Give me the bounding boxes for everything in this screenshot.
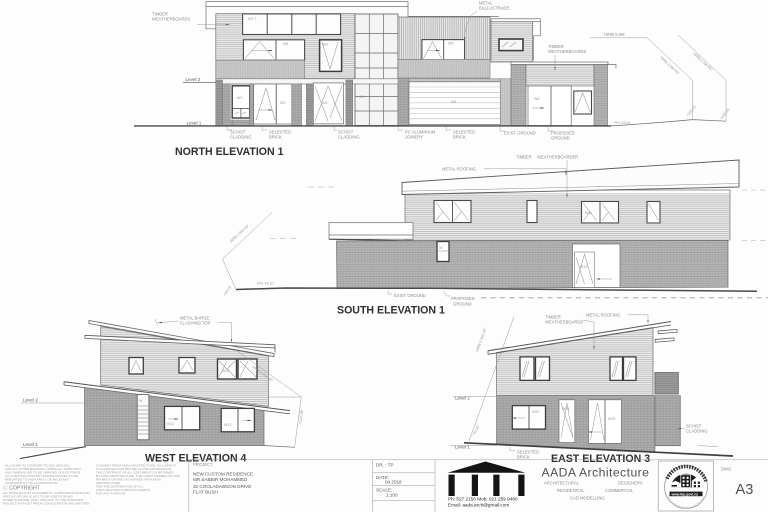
svg-text:CLADDING: CLADDING [686,429,708,434]
svg-text:+2142.80: +2142.80 [298,410,304,426]
svg-text:BRICK: BRICK [269,135,282,140]
svg-text:NORTH ELEVATION 1: NORTH ELEVATION 1 [175,146,284,158]
svg-text:W5: W5 [534,97,539,101]
svg-text:EAST ELEVATION 3: EAST ELEVATION 3 [551,453,650,465]
svg-text:Level 2: Level 2 [23,398,38,403]
svg-text:HIRB 5.0M: HIRB 5.0M [604,32,625,37]
svg-text:CONSULTANT FOR CLARIFICATION.: CONSULTANT FOR CLARIFICATION. [5,481,58,485]
svg-text:W: W [439,246,443,250]
svg-text:FPL 43.10: FPL 43.10 [257,282,273,286]
svg-text:SOUTH ELEVATION 1: SOUTH ELEVATION 1 [337,305,445,317]
svg-text:WEATHERBOARDS: WEATHERBOARDS [548,49,587,54]
svg-text:BRICK: BRICK [517,455,530,460]
svg-text:W10: W10 [222,369,229,373]
svg-text:METAL ROOFING: METAL ROOFING [586,313,620,318]
svg-text:FLAT BUSH: FLAT BUSH [193,490,218,495]
svg-text:A3: A3 [736,482,754,498]
svg-text:W25: W25 [608,417,615,421]
svg-text:PROJECT: PROJECT [193,462,213,467]
svg-text:FOR ANY PURPOSE.: FOR ANY PURPOSE. [96,492,127,496]
svg-text:JOINERY: JOINERY [405,135,423,140]
svg-text:PROPOSED: PROPOSED [451,296,475,301]
svg-text:W21: W21 [532,410,539,414]
svg-text:Level 1: Level 1 [187,120,202,125]
svg-text:HIRB 2.5M+45°: HIRB 2.5M+45° [229,223,251,243]
svg-text:MR.SABBIR MOHAMMED: MR.SABBIR MOHAMMED [193,477,248,482]
svg-text:W3: W3 [322,101,327,105]
svg-text:W1: W1 [237,96,242,100]
svg-text:Ph: 527 2156 Mob: 021 259 948: Ph: 527 2156 Mob: 021 259 9480 [448,497,518,502]
svg-text:RESIDENTIAL: RESIDENTIAL [557,488,585,493]
svg-text:Level 1: Level 1 [23,442,38,447]
svg-text:04.2018: 04.2018 [385,480,402,485]
svg-text:W9: W9 [323,43,328,47]
svg-text:NEW CUSTOM RESIDENCE: NEW CUSTOM RESIDENCE [193,472,253,477]
svg-text:W24: W24 [562,407,569,411]
svg-text:DWG: DWG [721,467,731,472]
svg-text:WEATHERBOARDER: WEATHERBOARDER [537,155,578,160]
svg-text:W13: W13 [224,423,231,427]
svg-text:WEATHERBOARDS: WEATHERBOARDS [545,320,584,325]
svg-text:HIRB 2.5M+45°: HIRB 2.5M+45° [659,56,681,76]
svg-text:www.lbp.govt.nz: www.lbp.govt.nz [671,492,699,496]
svg-text:AADA Architecture: AADA Architecture [542,466,650,480]
svg-text:EXIST GROUND: EXIST GROUND [504,131,536,136]
svg-text:GROUND: GROUND [453,301,472,306]
svg-text:32 COOLADAWSON DRIVE: 32 COOLADAWSON DRIVE [193,484,251,489]
svg-text:W5: W5 [448,42,453,46]
svg-text:METAL ROOFING: METAL ROOFING [442,167,476,172]
svg-text:CLADDING: CLADDING [230,135,252,140]
svg-text:BRICK: BRICK [453,135,466,140]
svg-text:CAD MODELLING: CAD MODELLING [570,496,605,501]
svg-text:+43.25: +43.25 [223,285,233,296]
svg-text:W13: W13 [580,265,587,269]
svg-text:FLASHING TOP: FLASHING TOP [180,321,211,326]
svg-text:TIMBER: TIMBER [516,155,532,160]
svg-text:GROUND: GROUND [551,136,570,141]
svg-text:WEATHERBOARDS: WEATHERBOARDS [152,17,191,22]
svg-text:W6: W6 [451,100,456,104]
svg-text:ARCHITECTURAL: ARCHITECTURAL [544,481,580,486]
svg-text:Level 2: Level 2 [455,396,470,401]
svg-text:CLADDING: CLADDING [338,135,360,140]
svg-text:W4: W4 [359,95,364,99]
svg-text:W8: W8 [283,42,288,46]
svg-text:FPL 43.10: FPL 43.10 [614,121,630,125]
svg-text:W7.7: W7.7 [248,17,256,21]
svg-text:Email: aada.arch@gmail.com: Email: aada.arch@gmail.com [448,503,509,508]
svg-text:PROJECT WITHOUT PRIOR CONSULTA: PROJECT WITHOUT PRIOR CONSULTATION AND W… [3,502,90,506]
svg-text:EXIST GROUND: EXIST GROUND [394,293,426,298]
svg-text:COMMERCIAL: COMMERCIAL [605,488,634,493]
svg-text:+243.20: +243.20 [686,105,697,118]
svg-text:+243.26: +243.26 [719,108,730,121]
svg-text:Level 2: Level 2 [186,77,201,82]
svg-text:BALLUSTRADE: BALLUSTRADE [479,6,509,11]
svg-text:1:100: 1:100 [386,493,398,498]
svg-text:DR. : TP: DR. : TP [376,463,394,468]
svg-text:W12: W12 [167,422,174,426]
svg-text:HIRB 2.5M+45°: HIRB 2.5M+45° [475,327,488,352]
svg-text:W11: W11 [585,211,592,215]
svg-text:DESIGNERS: DESIGNERS [618,481,643,486]
svg-text:+43.50: +43.50 [471,425,480,437]
svg-text:W: W [139,399,143,403]
svg-text:HIRB 2.5M+45°: HIRB 2.5M+45° [692,52,714,72]
svg-text:W2: W2 [280,101,285,105]
